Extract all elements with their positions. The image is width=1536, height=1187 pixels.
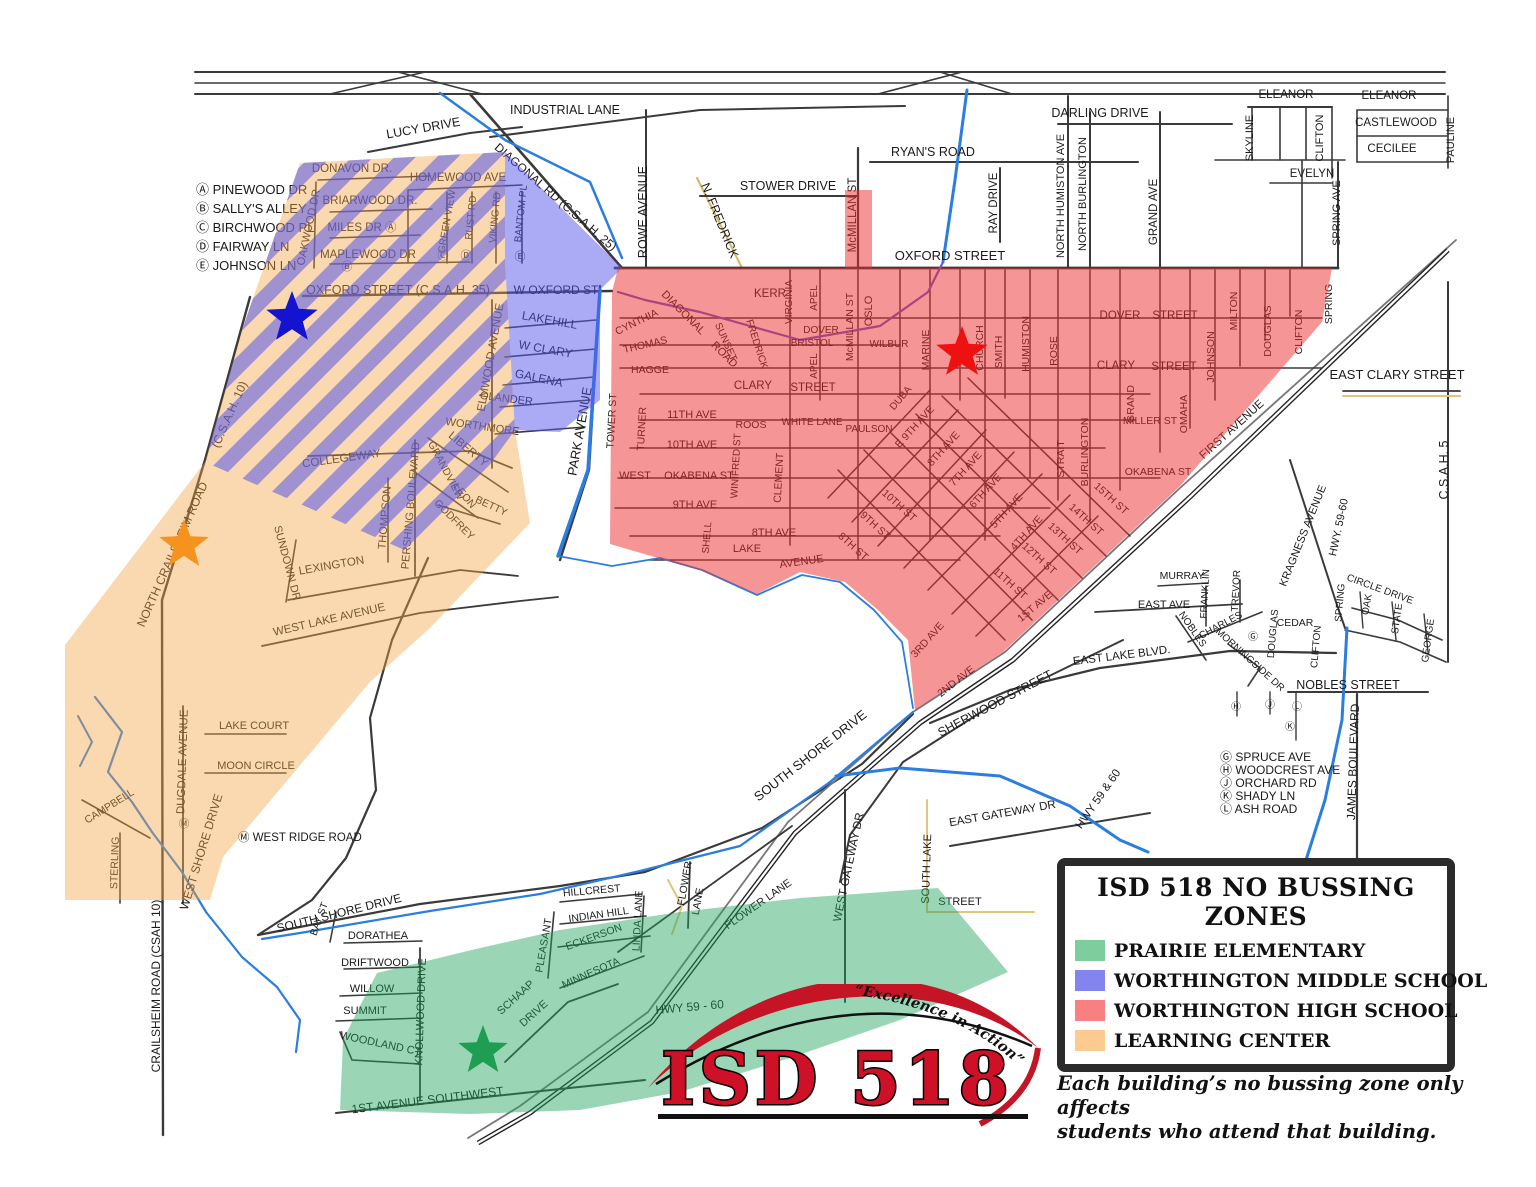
- street-label: HWY. 59-60: [1327, 498, 1351, 558]
- isd518-logo: ISD 518 “Excellence in Action”: [642, 984, 1042, 1139]
- isd518-logo-art: ISD 518 “Excellence in Action”: [642, 984, 1042, 1139]
- street-label: CLIFTON: [1314, 115, 1326, 162]
- street-label: EAST AVE: [1138, 599, 1190, 611]
- legend-item: PRAIRIE ELEMENTARY: [1075, 940, 1437, 962]
- street-label: ELEANOR: [1259, 89, 1314, 101]
- street-label: CASTLEWOOD: [1355, 117, 1437, 129]
- street-label: SKYLINE: [1244, 115, 1256, 161]
- legend-title-line1: ISD 518 NO BUSSING: [1075, 874, 1437, 903]
- zone-swatch: [1075, 940, 1105, 961]
- street-label: NORTH HUMISTON AVE: [1055, 134, 1067, 258]
- street-label: JAMES BOULEVARD: [1344, 703, 1362, 820]
- logo-text: ISD 518: [661, 1036, 1012, 1121]
- street-label: SPRING AVE: [1331, 180, 1343, 246]
- street-label: CIRCLE DRIVE: [1345, 573, 1415, 607]
- street-label: Ⓛ: [1292, 701, 1302, 713]
- legend-items: PRAIRIE ELEMENTARY WORTHINGTON MIDDLE SC…: [1075, 940, 1437, 1052]
- zone-swatch: [1075, 970, 1105, 991]
- street-label: NORTH BURLINGTON: [1077, 137, 1089, 251]
- street-label: CECILEE: [1367, 143, 1417, 155]
- street-label: C.S.A.H. 5: [1437, 440, 1451, 499]
- street-label: INDUSTRIAL LANE: [510, 103, 620, 117]
- street-label: Ⓚ: [1285, 721, 1295, 733]
- legend-box: ISD 518 NO BUSSING ZONES PRAIRIE ELEMENT…: [1057, 858, 1455, 1072]
- legend-item-label: LEARNING CENTER: [1114, 1030, 1330, 1052]
- street-label: SOUTH SHORE DRIVE: [751, 707, 870, 804]
- street-label: Ⓖ SPRUCE AVE: [1220, 750, 1311, 764]
- legend-item: WORTHINGTON MIDDLE SCHOOL: [1075, 970, 1437, 992]
- street-label: Ⓗ: [1231, 701, 1241, 713]
- street-label: SPRING: [1333, 583, 1347, 622]
- legend-footnote: Each building’s no bussing zone only aff…: [1057, 1072, 1487, 1143]
- street-label: ELEANOR: [1362, 90, 1417, 102]
- street-label: EAST GATEWAY DR: [948, 799, 1056, 830]
- logo-underline: [658, 1114, 1028, 1119]
- street-label: STOWER DRIVE: [740, 179, 836, 193]
- street-label: NOBLES STREET: [1296, 678, 1400, 692]
- street-label: RAY DRIVE: [988, 172, 1000, 233]
- street-label: EAST CLARY STREET: [1329, 367, 1464, 382]
- legend-title: ISD 518 NO BUSSING ZONES: [1075, 874, 1437, 932]
- legend-item-label: WORTHINGTON HIGH SCHOOL: [1114, 1000, 1457, 1022]
- legend-title-line2: ZONES: [1075, 903, 1437, 932]
- street-label: Ⓗ WOODCREST AVE: [1220, 763, 1340, 777]
- street-label: OXFORD STREET: [895, 248, 1006, 263]
- zone-swatch: [1075, 1030, 1105, 1051]
- street-label: PAULINE: [1445, 117, 1457, 163]
- street-label: GRAND AVE: [1148, 179, 1160, 246]
- street-label: N. FREDRICK: [698, 181, 741, 261]
- legend-item-label: PRAIRIE ELEMENTARY: [1114, 940, 1365, 962]
- street-label: SOUTH SHORE DRIVE: [275, 891, 403, 936]
- street-label: TREVOR: [1230, 570, 1243, 612]
- street-label: FRANKLIN: [1199, 569, 1213, 619]
- footnote-line2: students who attend that building.: [1057, 1120, 1487, 1144]
- legend-item: WORTHINGTON HIGH SCHOOL: [1075, 1000, 1437, 1022]
- street-label: ROWE AVENUE: [636, 166, 650, 258]
- street-label: MURRAY: [1160, 570, 1205, 582]
- street-label: Ⓚ SHADY LN: [1220, 789, 1295, 803]
- street-label: Ⓙ: [1265, 699, 1275, 711]
- street-label: DORATHEA: [348, 930, 409, 942]
- street-label: DARLING DRIVE: [1051, 106, 1148, 120]
- street-label: OAK: [1360, 593, 1375, 616]
- street-label: Ⓛ ASH ROAD: [1220, 802, 1298, 816]
- street-label: Ⓙ ORCHARD RD: [1220, 776, 1317, 790]
- street-label: RYAN'S ROAD: [891, 145, 975, 159]
- waterway: [943, 90, 967, 262]
- street-label: CEDAR: [1277, 617, 1314, 629]
- road: [840, 640, 1123, 882]
- street-label: Ⓜ WEST RIDGE ROAD: [238, 831, 362, 844]
- legend-item: LEARNING CENTER: [1075, 1030, 1437, 1052]
- street-label: DRIFTWOOD: [341, 957, 409, 969]
- street-label: EVELYN: [1290, 168, 1335, 180]
- street-label: Ⓖ: [1248, 631, 1258, 643]
- legend-item-label: WORTHINGTON MIDDLE SCHOOL: [1114, 970, 1487, 992]
- street-label: CRAILSHEIM ROAD (CSAH 10): [149, 900, 163, 1073]
- no-bussing-zones-map: INDUSTRIAL LANELUCY DRIVEDIAGONAL RD (C.…: [0, 0, 1536, 1187]
- street-label: CLIFTON: [1309, 625, 1324, 668]
- zone-swatch: [1075, 1000, 1105, 1021]
- footnote-line1: Each building’s no bussing zone only aff…: [1057, 1072, 1487, 1120]
